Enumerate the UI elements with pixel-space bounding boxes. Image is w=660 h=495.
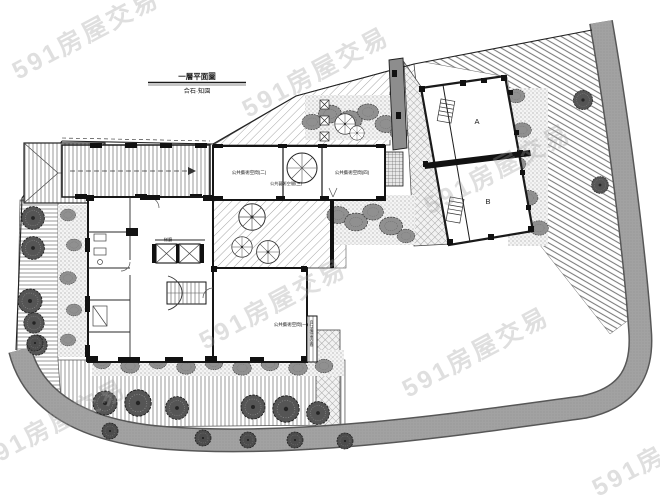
project-name: 合石·知園: [184, 87, 211, 95]
label-art-space-3: 公共藝術空間(三): [270, 180, 303, 187]
floorplan-screenshot: 公共藝術空間(二) 公共藝術空間(三) 公共藝術空間(四) 公共藝術空間(一) …: [0, 0, 660, 495]
planter-boxes: [320, 100, 329, 141]
label-elevator-lobby: 梯廳: [164, 236, 173, 243]
site-plan-drawing: 公共藝術空間(二) 公共藝術空間(三) 公共藝術空間(四) 公共藝術空間(一) …: [0, 0, 660, 495]
label-unit-a: A: [474, 117, 479, 126]
title-block: 一層平面圖 合石·知園: [148, 71, 246, 95]
spiral-stair: [287, 153, 317, 183]
vehicle-ramp: [62, 143, 210, 199]
watermark: 591房屋交易: [7, 0, 164, 85]
elevators: [152, 244, 204, 263]
label-bike-parking: 自行車停車空間: [309, 319, 314, 347]
watermark: 591房屋交易: [397, 301, 554, 403]
label-art-space-1: 公共藝術空間(一): [274, 321, 309, 328]
label-art-space-4: 公共藝術空間(四): [335, 169, 370, 176]
drawing-title: 一層平面圖: [178, 71, 216, 81]
label-art-space-2: 公共藝術空間(二): [232, 169, 267, 176]
label-unit-b: B: [485, 197, 490, 206]
